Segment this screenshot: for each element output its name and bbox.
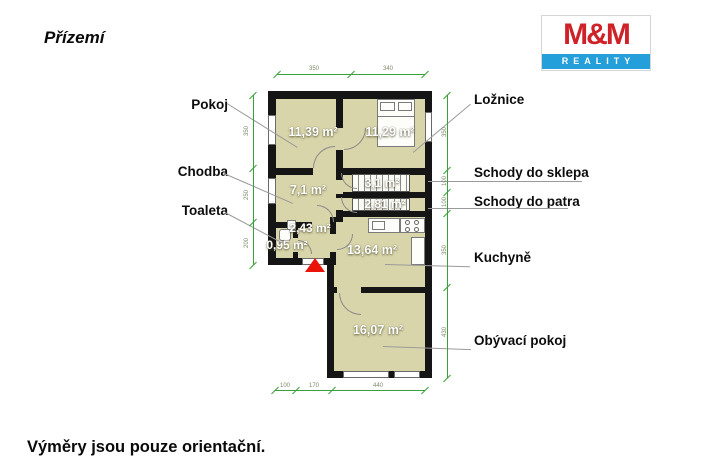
label-kuchyne: Kuchyně: [474, 250, 531, 265]
area-schody-sklep: 3,1 m²: [342, 176, 422, 190]
dim-line-bottom: [275, 390, 425, 391]
wall-mid-left: [268, 168, 313, 175]
logo-mm-text: M&M: [542, 16, 650, 54]
stove-burner: [414, 220, 419, 225]
mm-reality-logo: M&M REALITY: [541, 15, 651, 71]
dim-value-top-2: 340: [373, 65, 403, 73]
logo-reality-text: REALITY: [542, 54, 650, 69]
label-loznice: Ložnice: [474, 92, 524, 107]
dim-value-left-3: 200: [243, 228, 251, 258]
wall-outer-lower-left: [327, 265, 334, 378]
dim-value-right-4: 350: [441, 235, 449, 265]
bed-pillow-left: [380, 102, 395, 111]
label-toaleta: Toaleta: [138, 203, 228, 218]
leader-schody-sklep: [428, 181, 582, 182]
floorplan-page: Přízemí M&M REALITY: [0, 0, 702, 468]
kitchen-sink: [372, 221, 385, 230]
dim-value-bottom-2: 170: [299, 382, 329, 390]
wall-pokoj-loznice-b: [336, 150, 343, 168]
dim-value-right-5: 430: [441, 317, 449, 347]
area-kuchyne: 13,64 m²: [332, 243, 412, 257]
bed-blanket-line: [378, 116, 414, 117]
label-schody-sklep: Schody do sklepa: [474, 165, 589, 180]
bed-pillow-right: [398, 102, 412, 111]
label-pokoj: Pokoj: [138, 97, 228, 112]
dim-value-right-1: 350: [441, 117, 449, 147]
dim-value-right-3: 100: [441, 187, 449, 217]
kitchen-cabinet: [411, 237, 425, 265]
area-toaleta: 0,95 m²: [247, 238, 327, 252]
wall-kitchen-living-b: [361, 287, 432, 293]
dim-value-bottom-3: 440: [363, 382, 393, 390]
label-schody-patro: Schody do patra: [474, 194, 580, 209]
window-living-1: [343, 371, 389, 378]
dim-value-bottom-1: 100: [270, 382, 300, 390]
page-title: Přízemí: [44, 28, 104, 48]
kitchen-stove: [400, 218, 425, 233]
entrance-arrow: [305, 258, 325, 272]
area-chodba: 7,1 m²: [268, 183, 348, 197]
stove-burner: [414, 227, 419, 232]
dim-value-left-1: 350: [243, 116, 251, 146]
area-loznice: 11,29 m²: [350, 125, 430, 139]
wall-kitchen-living-a: [327, 287, 337, 293]
wall-pokoj-loznice-a: [336, 91, 343, 128]
area-schody-patro: 2,81 m²: [345, 197, 425, 211]
area-predsin: 2,43 m²: [270, 221, 350, 235]
dim-value-top-1: 350: [299, 65, 329, 73]
window-living-2: [394, 371, 420, 378]
dim-line-left: [253, 95, 254, 265]
label-chodba: Chodba: [138, 164, 228, 179]
disclaimer-text: Výměry jsou pouze orientační.: [27, 438, 265, 457]
stove-burner: [405, 227, 410, 232]
wall-outer-top: [268, 91, 432, 99]
dim-value-left-2: 250: [243, 180, 251, 210]
label-obyvaci: Obývací pokoj: [474, 333, 566, 348]
area-obyvaci: 16,07 m²: [338, 323, 418, 337]
stove-burner: [405, 220, 410, 225]
area-pokoj: 11,39 m²: [273, 125, 353, 139]
